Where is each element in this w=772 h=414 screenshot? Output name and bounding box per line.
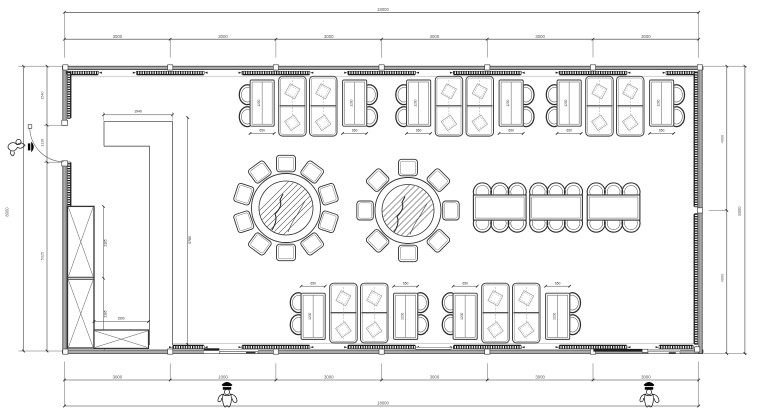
svg-text:650: 650 xyxy=(463,281,469,285)
svg-text:650: 650 xyxy=(555,281,561,285)
svg-text:3000: 3000 xyxy=(641,34,651,39)
svg-text:8000: 8000 xyxy=(737,206,742,216)
svg-text:3000: 3000 xyxy=(324,34,334,39)
svg-text:4000: 4000 xyxy=(719,134,724,143)
svg-text:3000: 3000 xyxy=(324,375,334,380)
svg-text:3000: 3000 xyxy=(113,34,123,39)
svg-text:650: 650 xyxy=(311,281,317,285)
svg-text:650: 650 xyxy=(403,281,409,285)
svg-text:3000: 3000 xyxy=(535,34,545,39)
svg-text:3000: 3000 xyxy=(113,375,123,380)
svg-text:650: 650 xyxy=(659,129,665,133)
svg-text:1540: 1540 xyxy=(40,91,44,99)
svg-text:3000: 3000 xyxy=(641,375,651,380)
svg-text:2105: 2105 xyxy=(104,239,108,246)
svg-text:1940: 1940 xyxy=(134,110,142,114)
svg-text:650: 650 xyxy=(567,129,573,133)
svg-text:5325: 5325 xyxy=(40,252,44,260)
svg-text:5785: 5785 xyxy=(188,236,192,244)
svg-text:1500: 1500 xyxy=(117,316,124,320)
svg-text:3000: 3000 xyxy=(430,375,440,380)
svg-text:18000: 18000 xyxy=(377,401,389,406)
svg-text:4000: 4000 xyxy=(719,273,724,282)
svg-text:650: 650 xyxy=(260,129,266,133)
svg-text:1000: 1000 xyxy=(218,375,228,380)
svg-text:2105: 2105 xyxy=(104,310,108,317)
svg-text:3000: 3000 xyxy=(218,34,228,39)
svg-text:3000: 3000 xyxy=(535,375,545,380)
svg-text:8000: 8000 xyxy=(5,207,10,217)
svg-text:1116: 1116 xyxy=(40,139,44,147)
svg-text:3000: 3000 xyxy=(430,34,440,39)
svg-text:18000: 18000 xyxy=(377,7,389,12)
svg-text:650: 650 xyxy=(352,129,358,133)
svg-text:650: 650 xyxy=(416,129,422,133)
svg-text:650: 650 xyxy=(509,129,515,133)
